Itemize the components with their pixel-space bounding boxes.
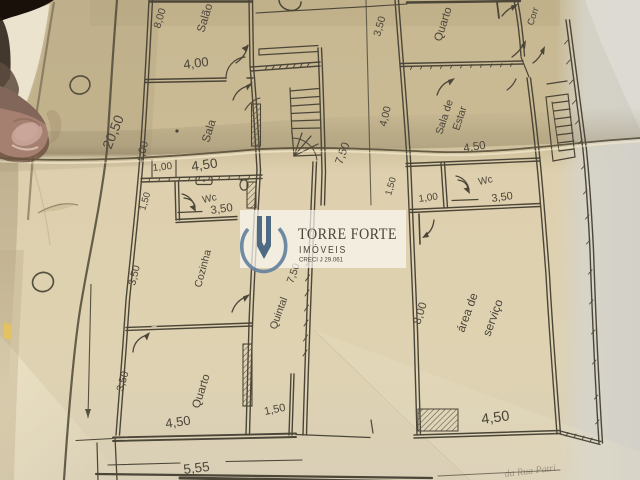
svg-text:CRECI J 29.061: CRECI J 29.061: [299, 257, 343, 264]
svg-text:4,00: 4,00: [183, 54, 210, 72]
svg-text:TORRE FORTE: TORRE FORTE: [298, 226, 397, 243]
svg-text:1,00: 1,00: [152, 161, 173, 174]
svg-text:IMÓVEIS: IMÓVEIS: [299, 243, 347, 256]
svg-text:5,55: 5,55: [183, 459, 211, 477]
